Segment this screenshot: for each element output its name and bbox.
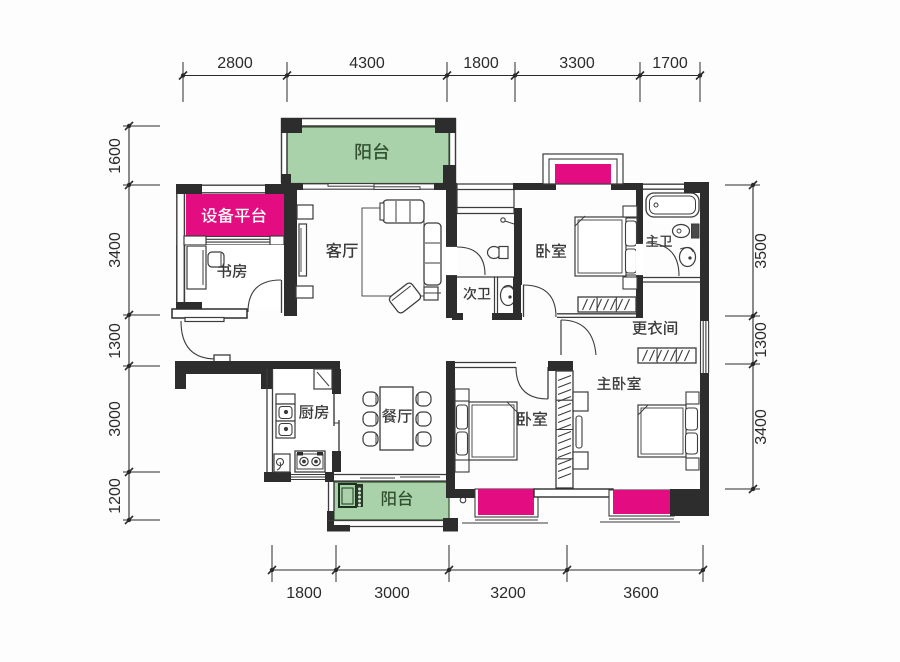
svg-text:3000: 3000 [374,585,410,602]
svg-text:3300: 3300 [559,55,595,72]
svg-text:3200: 3200 [490,585,526,602]
svg-text:1800: 1800 [463,55,499,72]
svg-text:1300: 1300 [753,322,770,358]
svg-text:1700: 1700 [652,55,688,72]
svg-text:3400: 3400 [107,232,124,268]
svg-text:3400: 3400 [753,409,770,445]
svg-text:2800: 2800 [217,55,253,72]
svg-text:3500: 3500 [753,233,770,269]
svg-text:4300: 4300 [349,55,385,72]
svg-text:1300: 1300 [107,323,124,359]
svg-text:1600: 1600 [107,138,124,174]
svg-text:1200: 1200 [107,478,124,514]
svg-text:3000: 3000 [107,401,124,437]
svg-text:3600: 3600 [623,585,659,602]
svg-text:1800: 1800 [286,585,322,602]
